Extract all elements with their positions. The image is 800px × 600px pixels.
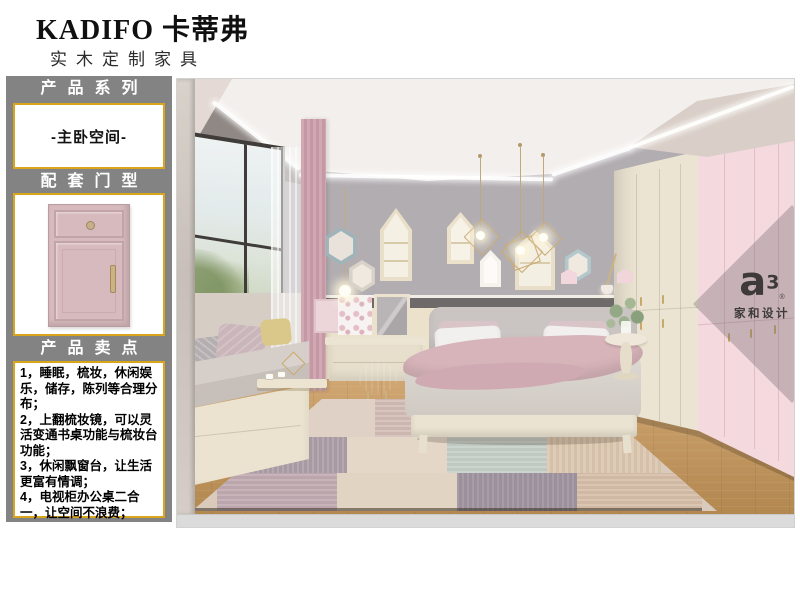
house-shelf <box>380 208 412 281</box>
near-wall-edge <box>177 79 195 515</box>
watermark-brand: 家和设计 <box>725 305 794 321</box>
house-shelf <box>480 250 501 287</box>
hexagon-shelf <box>323 227 359 265</box>
door-type-box <box>13 193 165 336</box>
door-panel <box>54 241 124 321</box>
bed-frame <box>411 415 637 437</box>
pullout-tray <box>257 379 327 388</box>
vanity-mirror <box>374 294 410 338</box>
designer-watermark: a3® 家和设计 <box>725 265 794 321</box>
section-title-door-type: 配套门型 <box>6 171 172 193</box>
selling-point: 2，上翻梳妆镜，可以灵活变通书桌功能与梳妆台功能； <box>20 413 158 460</box>
selling-point: 4，电视柜办公桌二合一，让空间不浪费； <box>20 490 158 521</box>
brand-subtitle: 实木定制家具 <box>50 45 206 70</box>
pendant-cord <box>520 146 521 240</box>
door-panel-inset <box>62 249 116 313</box>
rug-patch <box>457 473 577 511</box>
pendant-bulb <box>516 246 525 255</box>
door-handle <box>110 265 116 293</box>
seat-pillow-yellow <box>260 318 292 347</box>
bed-leg <box>418 435 427 454</box>
watermark-letter: a <box>739 259 766 305</box>
pendant-cord <box>543 156 544 230</box>
photo-matte <box>177 514 794 527</box>
teacup <box>277 371 286 378</box>
teacup <box>265 373 274 380</box>
bedroom-photo: a3® 家和设计 <box>177 79 794 527</box>
vanity-pendant-bulb <box>339 285 351 297</box>
pendant-bulb <box>476 231 485 240</box>
bay-window <box>185 131 285 313</box>
selling-point: 3，休闲飘窗台，让生活更富有情调； <box>20 459 158 490</box>
bedroom-scene: a3® 家和设计 <box>177 79 794 515</box>
series-box: -主卧空间- <box>13 103 165 169</box>
brand-logo: KADIFO 卡蒂弗 <box>36 8 249 48</box>
product-sheet: KADIFO 卡蒂弗 实木定制家具 产品系列 -主卧空间- 配套门型 产品卖点 … <box>0 0 800 600</box>
rug-patch <box>217 473 337 511</box>
pendant-bulb <box>539 233 548 242</box>
sidebar: 产品系列 -主卧空间- 配套门型 产品卖点 1，睡眠，梳妆，休闲娱乐，储存，陈列… <box>6 76 172 522</box>
series-value: -主卧空间- <box>51 126 127 147</box>
pendant-cord <box>480 157 481 227</box>
rug-patch <box>347 437 447 473</box>
selling-point: 1，睡眠，梳妆，休闲娱乐，储存，陈列等合理分布； <box>20 366 158 413</box>
rug-patch <box>337 473 457 511</box>
wall-lamp-shade <box>601 285 613 294</box>
door-knob <box>86 221 95 230</box>
vanity-artboard <box>314 299 340 333</box>
vanity-floral-board <box>338 295 372 335</box>
door-drawer <box>54 210 124 238</box>
door-front-image <box>48 204 130 327</box>
pouf-stool <box>359 361 397 394</box>
bed-leg <box>622 435 631 454</box>
selling-points-box: 1，睡眠，梳妆，休闲娱乐，储存，陈列等合理分布； 2，上翻梳妆镜，可以灵活变通书… <box>13 361 165 518</box>
section-title-series: 产品系列 <box>6 78 172 100</box>
vanity-desk <box>325 337 427 345</box>
section-title-selling-points: 产品卖点 <box>6 338 172 360</box>
hexagon-shelf <box>347 260 377 292</box>
